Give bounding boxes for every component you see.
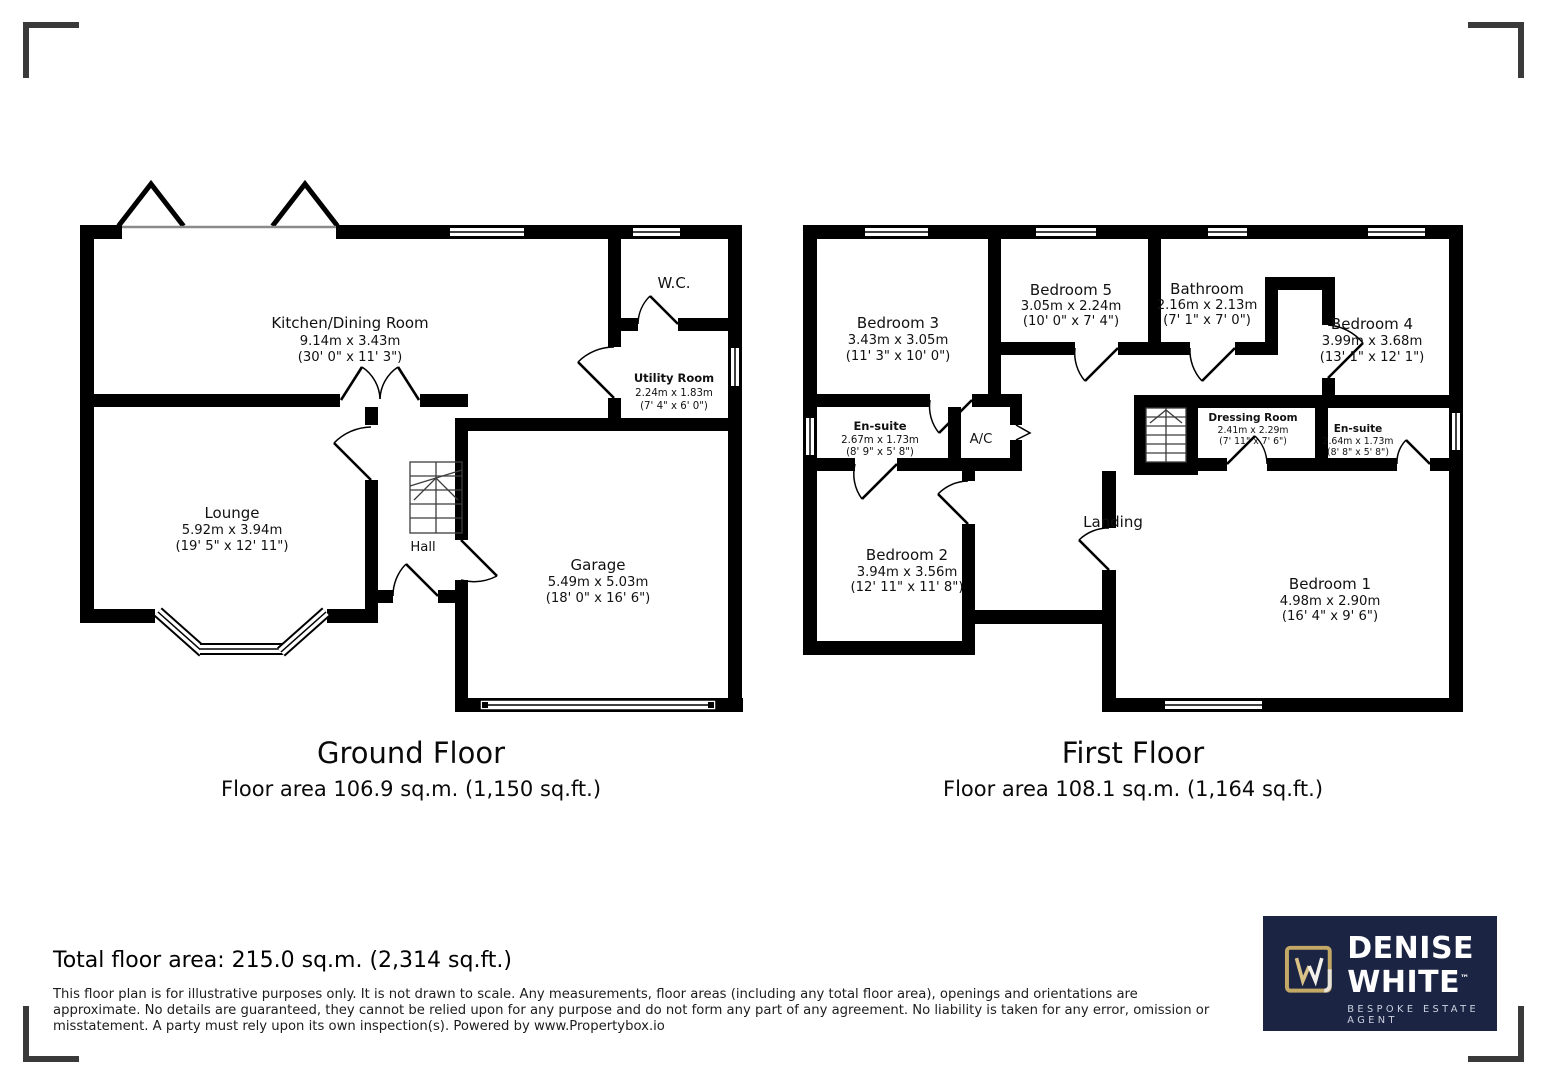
room-label-garage: Garage [571, 556, 626, 574]
disclaimer-text: This floor plan is for illustrative purp… [53, 987, 1213, 1035]
room-dim-kitchen-metric: 9.14m x 3.43m [300, 334, 401, 349]
crop-mark-top-left [23, 22, 79, 78]
ground-floor-plan: Kitchen/Dining Room 9.14m x 3.43m (30' 0… [80, 184, 743, 712]
room-label-bedroom5: Bedroom 5 [1030, 281, 1112, 299]
room-label-dressing: Dressing Room [1208, 412, 1297, 424]
bedroom5-door [1075, 348, 1118, 381]
lounge-door [334, 427, 371, 480]
room-label-wc: W.C. [657, 274, 690, 292]
room-label-bedroom4: Bedroom 4 [1331, 315, 1413, 333]
room-dim-bedroom3-imperial: (11' 3" x 10' 0") [846, 349, 951, 364]
bedroom1-door [1079, 528, 1109, 570]
ensuite-left-door [854, 464, 897, 499]
room-label-utility: Utility Room [634, 371, 714, 385]
room-dim-bedroom4-metric: 3.99m x 3.68m [1322, 334, 1423, 349]
crop-mark-top-right [1468, 22, 1524, 78]
room-dim-ensuite-right-imperial: (8' 8" x 5' 8") [1327, 447, 1389, 458]
estate-agent-logo: DENISE WHITE™ BESPOKE ESTATE AGENT [1263, 916, 1497, 1031]
room-dim-ensuite-right-metric: 2.64m x 1.73m [1323, 436, 1394, 447]
ground-floor-caption: Ground Floor Floor area 106.9 sq.m. (1,1… [80, 736, 742, 801]
ground-floor-area: Floor area 106.9 sq.m. (1,150 sq.ft.) [80, 777, 742, 801]
room-dim-utility-metric: 2.24m x 1.83m [635, 388, 713, 399]
crop-mark-bottom-left [23, 1006, 79, 1062]
bathroom-door [1190, 348, 1235, 381]
room-label-ensuite-right: En-suite [1334, 423, 1382, 435]
room-label-landing: Landing [1083, 513, 1143, 531]
room-dim-bedroom4-imperial: (13' 1" x 12' 1") [1320, 350, 1425, 365]
logo-tagline: BESPOKE ESTATE AGENT [1347, 1004, 1497, 1026]
first-floor-plan: Bedroom 3 3.43m x 3.05m (11' 3" x 10' 0"… [803, 225, 1463, 712]
room-dim-utility-imperial: (7' 4" x 6' 0") [640, 401, 708, 412]
room-dim-bedroom3-metric: 3.43m x 3.05m [848, 333, 949, 348]
room-dim-bedroom1-imperial: (16' 4" x 9' 6") [1282, 609, 1378, 624]
wc-door [638, 296, 678, 324]
kitchen-double-door [341, 367, 419, 400]
room-dim-ensuite-left-imperial: (8' 9" x 5' 8") [846, 447, 914, 458]
ensuite-right-door [1397, 440, 1430, 464]
logo-name-line1: DENISE [1347, 933, 1497, 964]
logo-name-line2: WHITE™ [1347, 964, 1497, 998]
utility-door [578, 347, 614, 398]
lounge-bay-window [158, 612, 326, 652]
room-label-bedroom1: Bedroom 1 [1289, 575, 1371, 593]
room-dim-bedroom5-metric: 3.05m x 2.24m [1021, 299, 1122, 314]
room-dim-bedroom2-metric: 3.94m x 3.56m [857, 565, 958, 580]
room-label-bedroom2: Bedroom 2 [866, 546, 948, 564]
room-dim-bathroom-imperial: (7' 1" x 7' 0") [1163, 313, 1251, 328]
room-label-lounge: Lounge [204, 504, 259, 522]
room-label-hall: Hall [410, 540, 435, 555]
room-dim-kitchen-imperial: (30' 0" x 11' 3") [298, 350, 403, 365]
room-dim-ensuite-left-metric: 2.67m x 1.73m [841, 435, 919, 446]
garage-door [480, 700, 716, 710]
room-dim-lounge-metric: 5.92m x 3.94m [182, 523, 283, 538]
room-label-ensuite-left: En-suite [853, 419, 906, 433]
front-door [393, 564, 438, 596]
room-label-bedroom3: Bedroom 3 [857, 314, 939, 332]
room-dim-dressing-imperial: (7' 11" x 7' 6") [1219, 436, 1287, 447]
first-floor-title: First Floor [803, 736, 1463, 770]
room-label-ac: A/C [970, 432, 993, 447]
first-floor-area: Floor area 108.1 sq.m. (1,164 sq.ft.) [803, 777, 1463, 801]
logo-w-monogram-icon [1283, 937, 1335, 1003]
room-dim-bedroom1-metric: 4.98m x 2.90m [1280, 594, 1381, 609]
ac-bifold-door [1016, 425, 1030, 440]
gable-triangle-right [274, 184, 336, 224]
first-floor-stairs [1146, 408, 1186, 462]
gable-triangle-left [120, 184, 182, 224]
room-label-bathroom: Bathroom [1170, 280, 1244, 298]
room-dim-garage-metric: 5.49m x 5.03m [548, 575, 649, 590]
room-label-kitchen: Kitchen/Dining Room [271, 314, 428, 332]
room-dim-bedroom5-imperial: (10' 0" x 7' 4") [1023, 314, 1119, 329]
garage-internal-door [461, 540, 497, 582]
room-dim-bathroom-metric: 2.16m x 2.13m [1157, 298, 1258, 313]
room-dim-garage-imperial: (18' 0" x 16' 6") [546, 591, 651, 606]
ground-floor-stairs [410, 462, 462, 533]
room-dim-bedroom2-imperial: (12' 11" x 11' 8") [851, 580, 964, 595]
floorplan-page: Kitchen/Dining Room 9.14m x 3.43m (30' 0… [0, 0, 1544, 1080]
first-floor-caption: First Floor Floor area 108.1 sq.m. (1,16… [803, 736, 1463, 801]
ground-floor-title: Ground Floor [80, 736, 742, 770]
room-dim-dressing-metric: 2.41m x 2.29m [1218, 425, 1289, 436]
room-dim-lounge-imperial: (19' 5" x 12' 11") [176, 539, 289, 554]
logo-trademark: ™ [1460, 974, 1470, 984]
total-floor-area: Total floor area: 215.0 sq.m. (2,314 sq.… [53, 948, 512, 973]
bedroom2-door [938, 481, 968, 524]
